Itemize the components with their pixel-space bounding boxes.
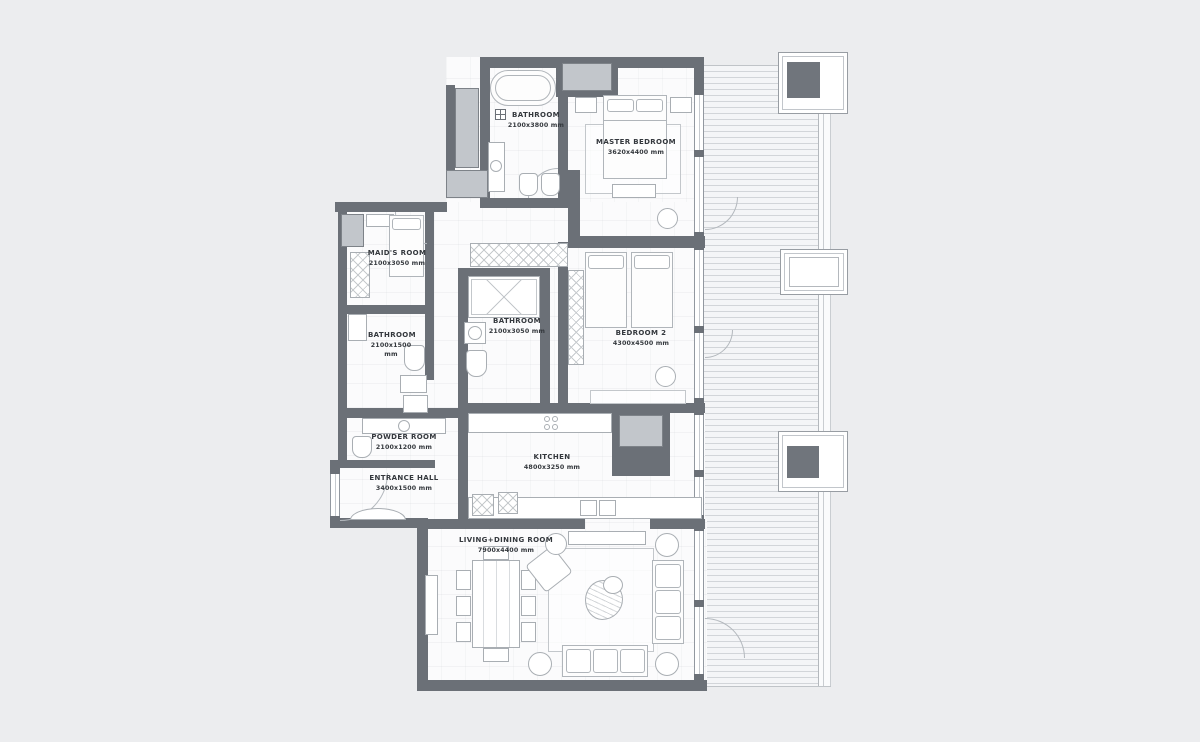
shower-glass [471, 279, 537, 315]
dining-chair [483, 648, 509, 662]
wall-maids-bath [338, 305, 434, 314]
sofa-cushion [655, 590, 681, 614]
kitchen-chair [472, 494, 494, 516]
sofa-cushion [655, 616, 681, 640]
floor-plan: BATHROOM 2100x3800 mm MASTER BEDROOM 362… [0, 0, 1200, 742]
bathroom-top-basin [490, 160, 502, 172]
room-dims: 2100x3050 mm [368, 259, 427, 268]
room-label-powder-room: POWDER ROOM 2100x1200 mm [371, 432, 436, 452]
wall-powder-bottom [345, 460, 435, 468]
bathtub-inner [495, 75, 551, 101]
laundry-appliance [403, 395, 428, 413]
coffee-table-small [603, 576, 623, 594]
terrace-column-bottom-core [787, 446, 819, 478]
room-label-master-bedroom: MASTER BEDROOM 3620x4400 mm [596, 137, 676, 157]
dining-chair [521, 622, 536, 642]
room-label-maids-room: MAID'S ROOM 2100x3050 mm [368, 248, 427, 268]
dining-chair [521, 596, 536, 616]
pillow [636, 99, 663, 112]
facade-tick [694, 326, 704, 333]
pillow [392, 218, 421, 230]
living-side-cabinet [425, 575, 438, 635]
blanket-line [604, 120, 666, 121]
facade-tick [694, 470, 704, 477]
room-name: BATHROOM [368, 330, 414, 341]
living-pouf [528, 652, 552, 676]
room-dims: 2100x1500 mm [368, 341, 414, 360]
wall-bottom [417, 680, 707, 691]
facade-tick [694, 398, 704, 415]
toilet [519, 173, 538, 196]
facade-tick [694, 674, 704, 687]
room-dims: 3400x1500 mm [369, 484, 438, 493]
kitchen-sink-right [599, 500, 616, 516]
room-dims: 7900x4400 mm [459, 546, 553, 555]
laundry-appliance [400, 375, 427, 393]
sofa-cushion [593, 649, 618, 673]
maids-shaft [341, 214, 364, 247]
living-pouf [655, 652, 679, 676]
wall-bath-small-right [425, 305, 434, 380]
room-label-living-dining: LIVING+DINING ROOM 7900x4400 mm [459, 535, 553, 555]
sofa-cushion [620, 649, 645, 673]
bed-bench [612, 184, 656, 198]
facade-tick [694, 57, 704, 95]
room-dims: 2100x3800 mm [508, 121, 564, 130]
bath-mid-toilet [466, 350, 487, 377]
cooktop-burner [544, 424, 550, 430]
powder-toilet [352, 436, 372, 458]
shaft-corridor-lower [446, 170, 488, 198]
room-dims: 4300x4500 mm [613, 339, 669, 348]
wall-kitchen-living-left [428, 519, 585, 529]
pillow [588, 255, 624, 269]
room-name: BEDROOM 2 [613, 328, 669, 339]
room-name: POWDER ROOM [371, 432, 436, 443]
kitchen-chair [498, 492, 518, 514]
bedroom2-wardrobe [568, 270, 584, 365]
pillow [634, 255, 670, 269]
tv-console [568, 531, 646, 545]
room-name: ENTRANCE HALL [369, 473, 438, 484]
sofa-cushion [655, 564, 681, 588]
wall-kitchen-left [458, 413, 468, 519]
terrace-bottom-edge [703, 686, 831, 687]
dining-chair [456, 596, 471, 616]
facade-tick [694, 150, 704, 157]
room-name: LIVING+DINING ROOM [459, 535, 553, 546]
kitchen-sink-left [580, 500, 597, 516]
wall-master-bedroom2 [568, 236, 705, 248]
master-pouf [657, 208, 678, 229]
kitchen-counter-top [468, 413, 612, 433]
facade-tick [694, 600, 704, 607]
terrace-deck [703, 66, 818, 686]
room-label-bathroom-top: BATHROOM 2100x3800 mm [508, 110, 564, 130]
kitchen-shaft-inner [619, 415, 663, 447]
room-label-bedroom-2: BEDROOM 2 4300x4500 mm [613, 328, 669, 348]
cooktop-burner [544, 416, 550, 422]
facade-tick [694, 232, 704, 250]
shaft-corridor [455, 88, 479, 168]
wall-master-entry [568, 170, 580, 240]
nightstand-right [670, 97, 692, 113]
room-label-kitchen: KITCHEN 4800x3250 mm [524, 452, 580, 472]
room-name: MASTER BEDROOM [596, 137, 676, 148]
room-name: KITCHEN [524, 452, 580, 463]
sofa-cushion [566, 649, 591, 673]
bath-mid-basin [468, 326, 482, 340]
wall-bathroom-top-bottom [480, 198, 580, 208]
cooktop-burner [552, 416, 558, 422]
dining-table [472, 560, 520, 648]
shaft-top [562, 63, 612, 91]
pillow [607, 99, 634, 112]
room-name: BATHROOM [489, 316, 545, 327]
terrace-railing [818, 66, 831, 686]
drain-grid-icon [495, 109, 506, 120]
dining-chair [456, 570, 471, 590]
powder-basin [398, 420, 410, 432]
entrance-door-opening [330, 474, 340, 516]
room-dims: 4800x3250 mm [524, 463, 580, 472]
bedroom2-runner-rug [590, 390, 686, 404]
bedroom2-pouf [655, 366, 676, 387]
room-dims: 3620x4400 mm [596, 148, 676, 157]
room-name: BATHROOM [508, 110, 564, 121]
terrace-column-top-core [787, 62, 820, 98]
room-label-entrance-hall: ENTRANCE HALL 3400x1500 mm [369, 473, 438, 493]
bidet [541, 173, 560, 196]
bath-small-sink [348, 314, 367, 341]
living-pouf [655, 533, 679, 557]
room-label-bathroom-mid: BATHROOM 2100x3050 mm [489, 316, 545, 336]
corridor-closet [470, 243, 568, 267]
dining-chair [456, 622, 471, 642]
nightstand-left [575, 97, 597, 113]
cooktop-burner [552, 424, 558, 430]
room-name: MAID'S ROOM [368, 248, 427, 259]
room-dims: 2100x3050 mm [489, 327, 545, 336]
room-label-bathroom-small: BATHROOM 2100x1500 mm [368, 330, 414, 359]
terrace-column-middle-core [789, 257, 839, 287]
room-dims: 2100x1200 mm [371, 443, 436, 452]
